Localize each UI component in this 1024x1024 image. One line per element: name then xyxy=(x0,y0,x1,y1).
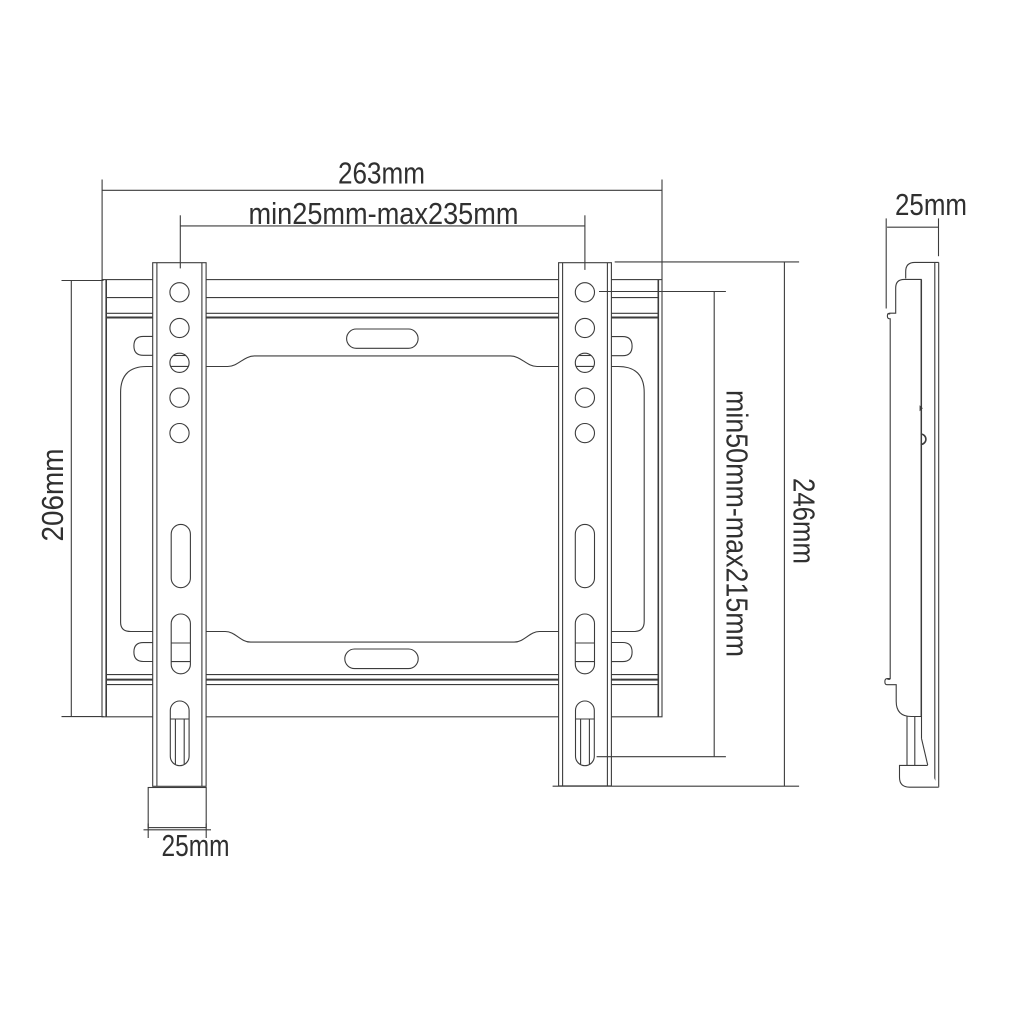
svg-text:246mm: 246mm xyxy=(787,478,822,564)
svg-text:263mm: 263mm xyxy=(338,155,425,190)
svg-text:min50mm-max215mm: min50mm-max215mm xyxy=(720,390,755,657)
svg-text:25mm: 25mm xyxy=(895,187,967,222)
svg-text:25mm: 25mm xyxy=(162,828,230,863)
svg-text:min25mm-max235mm: min25mm-max235mm xyxy=(249,196,519,231)
svg-text:206mm: 206mm xyxy=(35,449,70,542)
